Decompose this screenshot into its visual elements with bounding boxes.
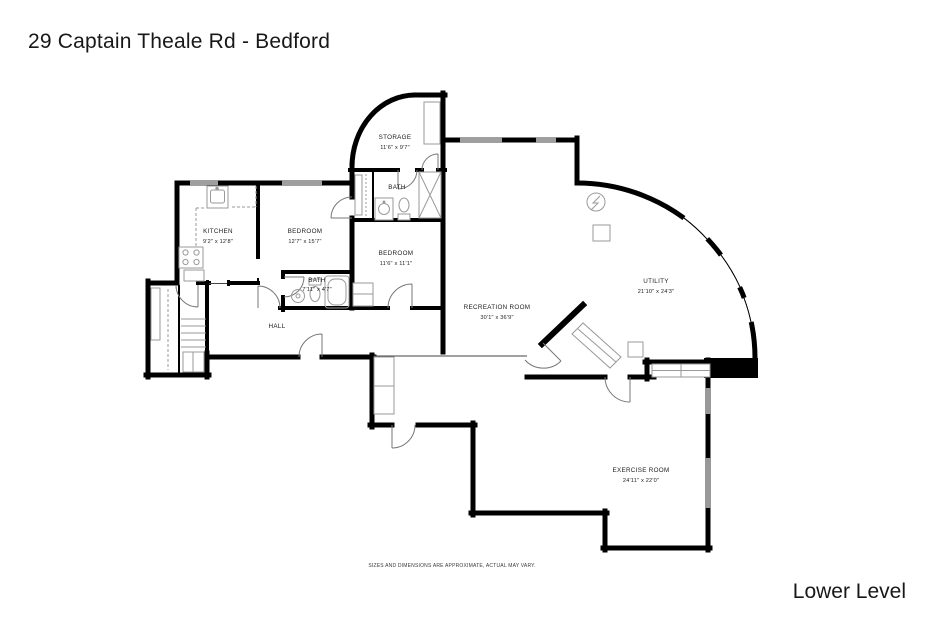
- water-heater: [587, 193, 605, 211]
- label-bedroom-right: BEDROOM: [379, 250, 414, 257]
- label-exercise: EXERCISE ROOM: [612, 467, 669, 474]
- dims-recreation: 30'1" x 36'9": [480, 315, 513, 321]
- bath-upper-fixtures: [375, 172, 441, 220]
- dims-storage: 11'6" x 9'7": [380, 145, 410, 151]
- fixtures: [151, 102, 710, 414]
- label-bath-lower: BATH: [308, 277, 326, 284]
- level-label: Lower Level: [793, 580, 906, 604]
- vestibule-closet: [374, 357, 394, 414]
- closet-bedroom-right: [353, 283, 373, 306]
- door-vestibule: [392, 425, 415, 448]
- label-recreation: RECREATION ROOM: [464, 304, 531, 311]
- toilet-bowl: [399, 198, 409, 212]
- under-stair-closet: [151, 288, 168, 370]
- door-closet: [331, 197, 352, 218]
- door-bath-lower: [284, 277, 304, 297]
- staircase: [181, 319, 206, 372]
- dims-bedroom-left: 12'7" x 15'7": [288, 239, 321, 245]
- opening-tick: [206, 280, 209, 286]
- label-bedroom-left: BEDROOM: [288, 228, 323, 235]
- door-bedroom-right: [388, 284, 412, 308]
- dims-bedroom-right: 11'6" x 11'1": [380, 261, 412, 267]
- opening-tick: [227, 280, 230, 286]
- walls-exterior: [146, 93, 755, 550]
- disclaimer-text: SIZES AND DIMENSIONS ARE APPROXIMATE, AC…: [368, 563, 535, 569]
- door-hall: [299, 334, 322, 357]
- wall-block-utility-corner: [704, 358, 758, 378]
- utility-fixtures: [572, 193, 643, 368]
- wall-storage-curve: [352, 95, 415, 167]
- storage-closet: [424, 102, 440, 144]
- dims-bath-lower: 7'11" x 4'7": [302, 287, 332, 293]
- dims-kitchen: 9'2" x 12'8": [203, 239, 233, 245]
- door-bedroom-left: [258, 286, 280, 308]
- label-utility: UTILITY: [643, 278, 669, 285]
- utility-box: [628, 342, 643, 357]
- dims-utility: 21'10" x 24'3": [638, 289, 675, 295]
- door-exercise: [605, 377, 630, 402]
- utility-box: [593, 225, 610, 241]
- label-storage: STORAGE: [379, 134, 412, 141]
- dims-exercise: 24'11" x 22'0": [623, 478, 659, 484]
- kitchen-stove: [179, 247, 203, 268]
- label-hall: HALL: [269, 323, 286, 330]
- door-storage: [422, 154, 438, 170]
- kitchen-cabinet: [184, 270, 204, 281]
- utility-closet: [652, 364, 710, 377]
- floor-plan-page: 29 Captain Theale Rd - Bedford: [0, 0, 930, 620]
- toilet-tank: [398, 214, 410, 220]
- kitchen-sink: [207, 186, 228, 208]
- floor-plan-canvas: STORAGE 11'6" x 9'7" BATH KITCHEN 9'2" x…: [0, 0, 930, 620]
- label-kitchen: KITCHEN: [203, 228, 233, 235]
- label-bath-upper: BATH: [388, 184, 406, 191]
- lightning-icon: [591, 196, 600, 210]
- closet-bedroom-left: [355, 174, 366, 216]
